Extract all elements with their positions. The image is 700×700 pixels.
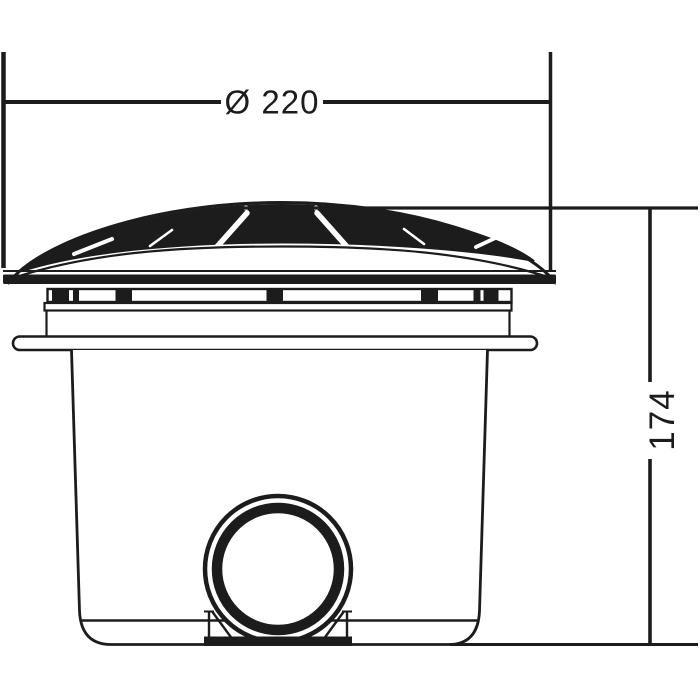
fastener-clips — [52, 288, 499, 303]
clip — [474, 288, 481, 303]
clip — [116, 288, 133, 303]
mounting-plate — [13, 337, 537, 351]
diameter-dimension-label: Ø 220 — [225, 84, 320, 121]
flange-band — [3, 275, 556, 285]
drawing-canvas: Ø 220 174 — [0, 0, 700, 700]
ring-plate — [45, 303, 512, 311]
technical-drawing: Ø 220 174 — [0, 0, 700, 700]
outlet-pipe-base — [204, 637, 352, 647]
height-dimension-label: 174 — [643, 389, 682, 450]
clip — [421, 288, 438, 303]
clip — [52, 288, 69, 303]
outlet-pipe-inner-ring — [217, 508, 339, 630]
clip — [267, 288, 284, 303]
clip — [484, 288, 499, 303]
clip — [73, 288, 79, 303]
